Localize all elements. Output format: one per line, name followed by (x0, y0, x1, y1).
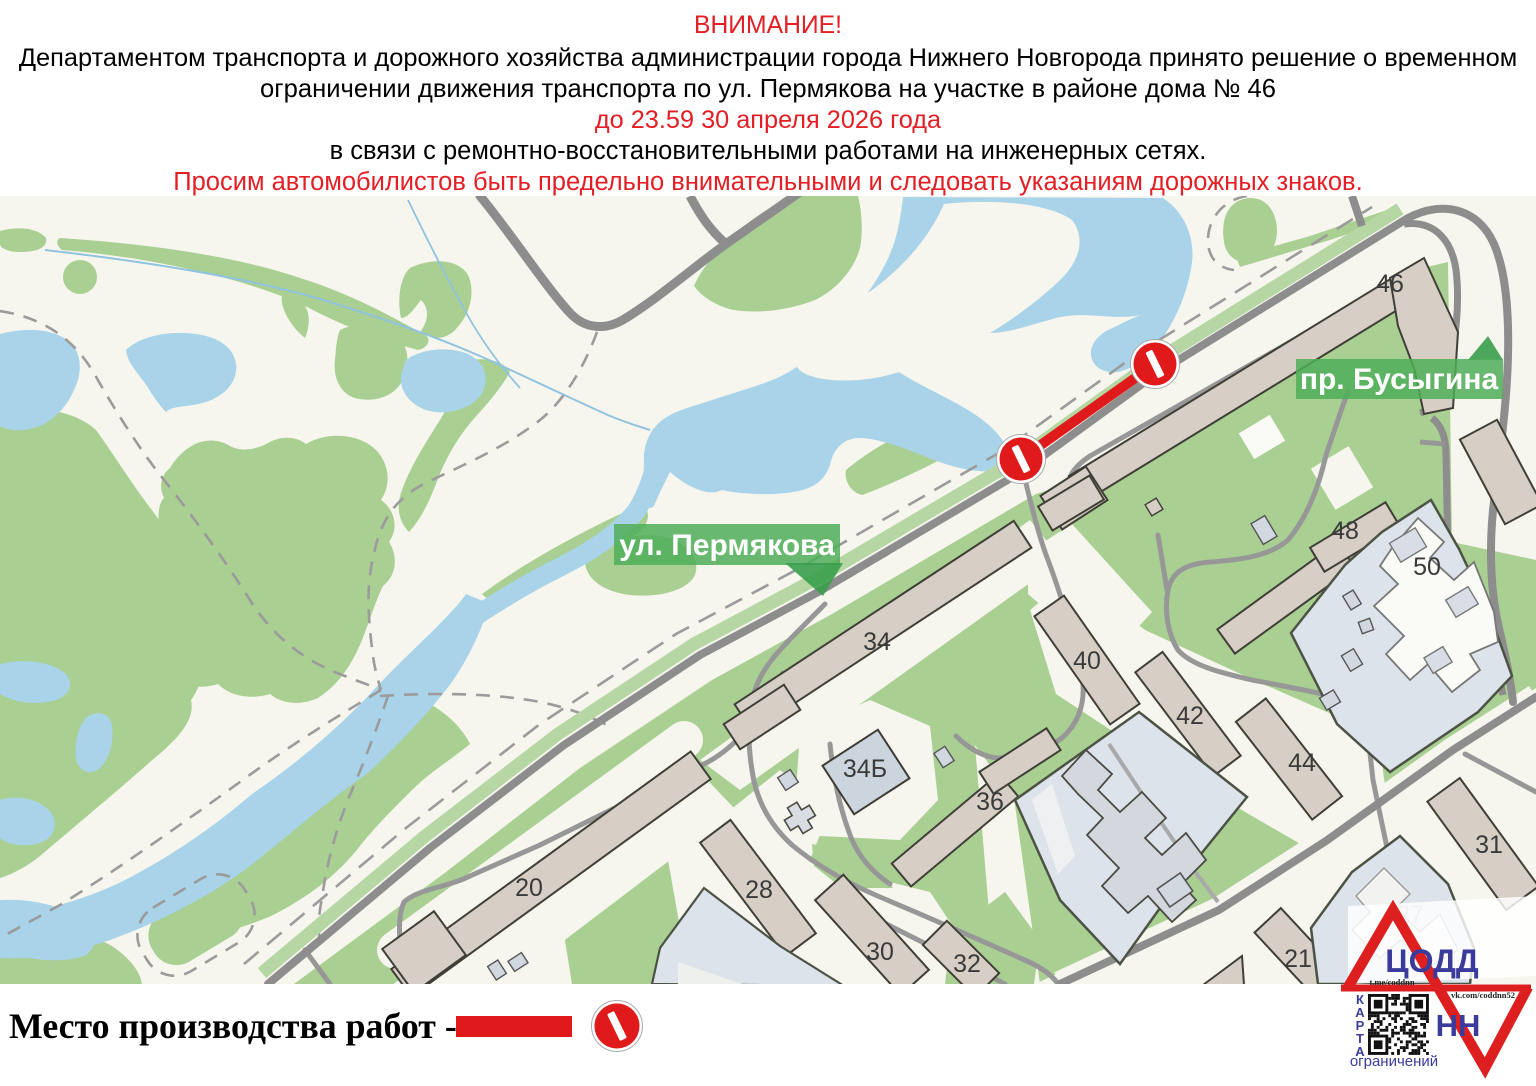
svg-text:40: 40 (1073, 647, 1101, 675)
svg-text:31: 31 (1475, 831, 1503, 859)
svg-text:до 23.59 30 апреля 2026 года: до 23.59 30 апреля 2026 года (595, 106, 942, 134)
svg-text:ул. Пермякова: ул. Пермякова (619, 529, 835, 562)
svg-text:21: 21 (1284, 945, 1312, 973)
svg-text:36: 36 (976, 788, 1004, 816)
svg-text:44: 44 (1288, 749, 1316, 777)
svg-text:28: 28 (745, 876, 773, 904)
svg-text:34: 34 (863, 628, 891, 656)
svg-text:46: 46 (1376, 270, 1404, 298)
svg-text:в связи с ремонтно-восстановит: в связи с ремонтно-восстановительными ра… (330, 137, 1207, 165)
svg-text:30: 30 (866, 938, 894, 966)
svg-text:ВНИМАНИЕ!: ВНИМАНИЕ! (694, 12, 842, 39)
svg-text:ЦОДД: ЦОДД (1385, 943, 1479, 979)
svg-text:пр. Бусыгина: пр. Бусыгина (1300, 363, 1499, 396)
svg-text:Место производства работ -: Место производства работ - (9, 1006, 457, 1046)
svg-text:t.me/coddnn: t.me/coddnn (1369, 977, 1414, 987)
svg-text:42: 42 (1176, 702, 1204, 730)
svg-text:Просим автомобилистов быть пре: Просим автомобилистов быть предельно вни… (173, 168, 1362, 196)
svg-text:vk.com/coddnn52: vk.com/coddnn52 (1451, 990, 1515, 1000)
svg-text:48: 48 (1331, 517, 1359, 545)
svg-text:34Б: 34Б (843, 755, 887, 783)
svg-text:ограничении движения транспорт: ограничении движения транспорта по ул. П… (260, 75, 1276, 103)
svg-text:НН: НН (1436, 1008, 1481, 1043)
svg-text:Департаментом транспорта и дор: Департаментом транспорта и дорожного хоз… (19, 44, 1517, 72)
svg-text:32: 32 (953, 950, 981, 978)
svg-text:20: 20 (515, 874, 543, 902)
svg-text:50: 50 (1413, 553, 1441, 581)
